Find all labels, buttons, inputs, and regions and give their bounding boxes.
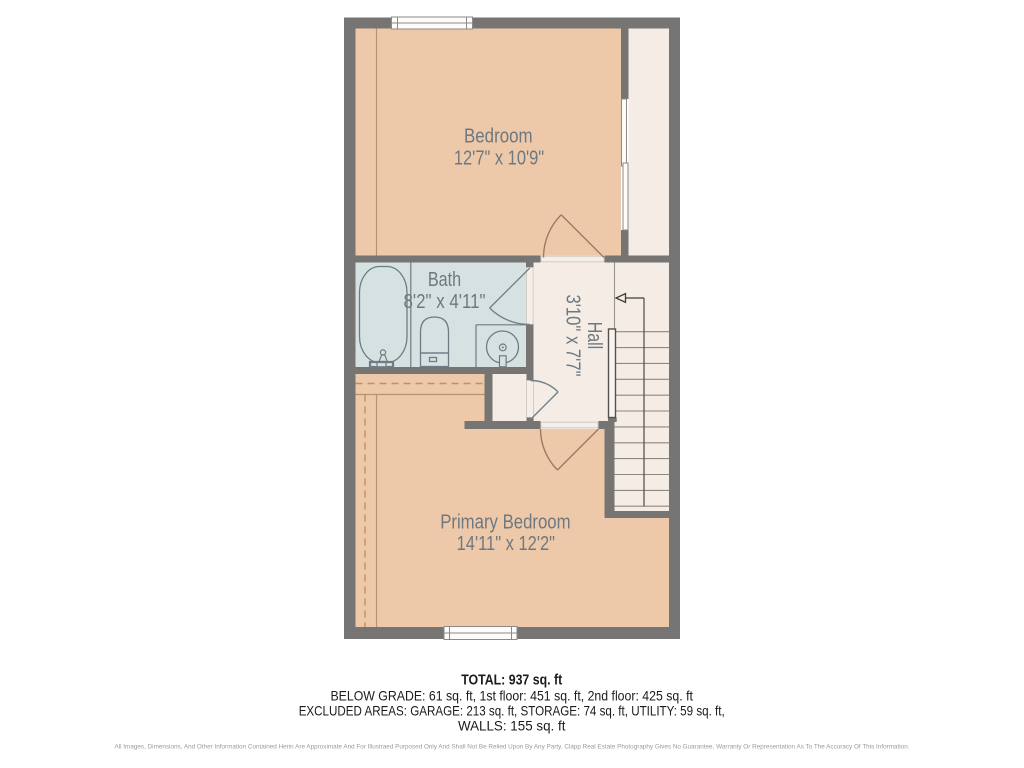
svg-text:WALLS: 155 sq. ft: WALLS: 155 sq. ft xyxy=(458,718,566,734)
svg-text:12'7" x 10'9": 12'7" x 10'9" xyxy=(454,148,544,170)
svg-text:EXCLUDED AREAS: GARAGE: 213 sq: EXCLUDED AREAS: GARAGE: 213 sq. ft, STOR… xyxy=(299,703,725,719)
svg-text:3'10" x 7'7": 3'10" x 7'7" xyxy=(562,295,584,377)
svg-text:TOTAL: 937 sq. ft: TOTAL: 937 sq. ft xyxy=(461,673,562,689)
svg-text:14'11" x 12'2": 14'11" x 12'2" xyxy=(457,533,555,555)
svg-text:All Images, Dimensions, And Ot: All Images, Dimensions, And Other Inform… xyxy=(115,744,910,751)
svg-text:Bedroom: Bedroom xyxy=(464,126,533,148)
svg-text:8'2" x 4'11": 8'2" x 4'11" xyxy=(404,291,486,313)
svg-text:Hall: Hall xyxy=(583,322,605,349)
svg-text:Bath: Bath xyxy=(428,269,461,291)
svg-text:BELOW GRADE: 61 sq. ft, 1st fl: BELOW GRADE: 61 sq. ft, 1st floor: 451 s… xyxy=(330,688,693,704)
svg-text:Primary Bedroom: Primary Bedroom xyxy=(440,512,570,534)
